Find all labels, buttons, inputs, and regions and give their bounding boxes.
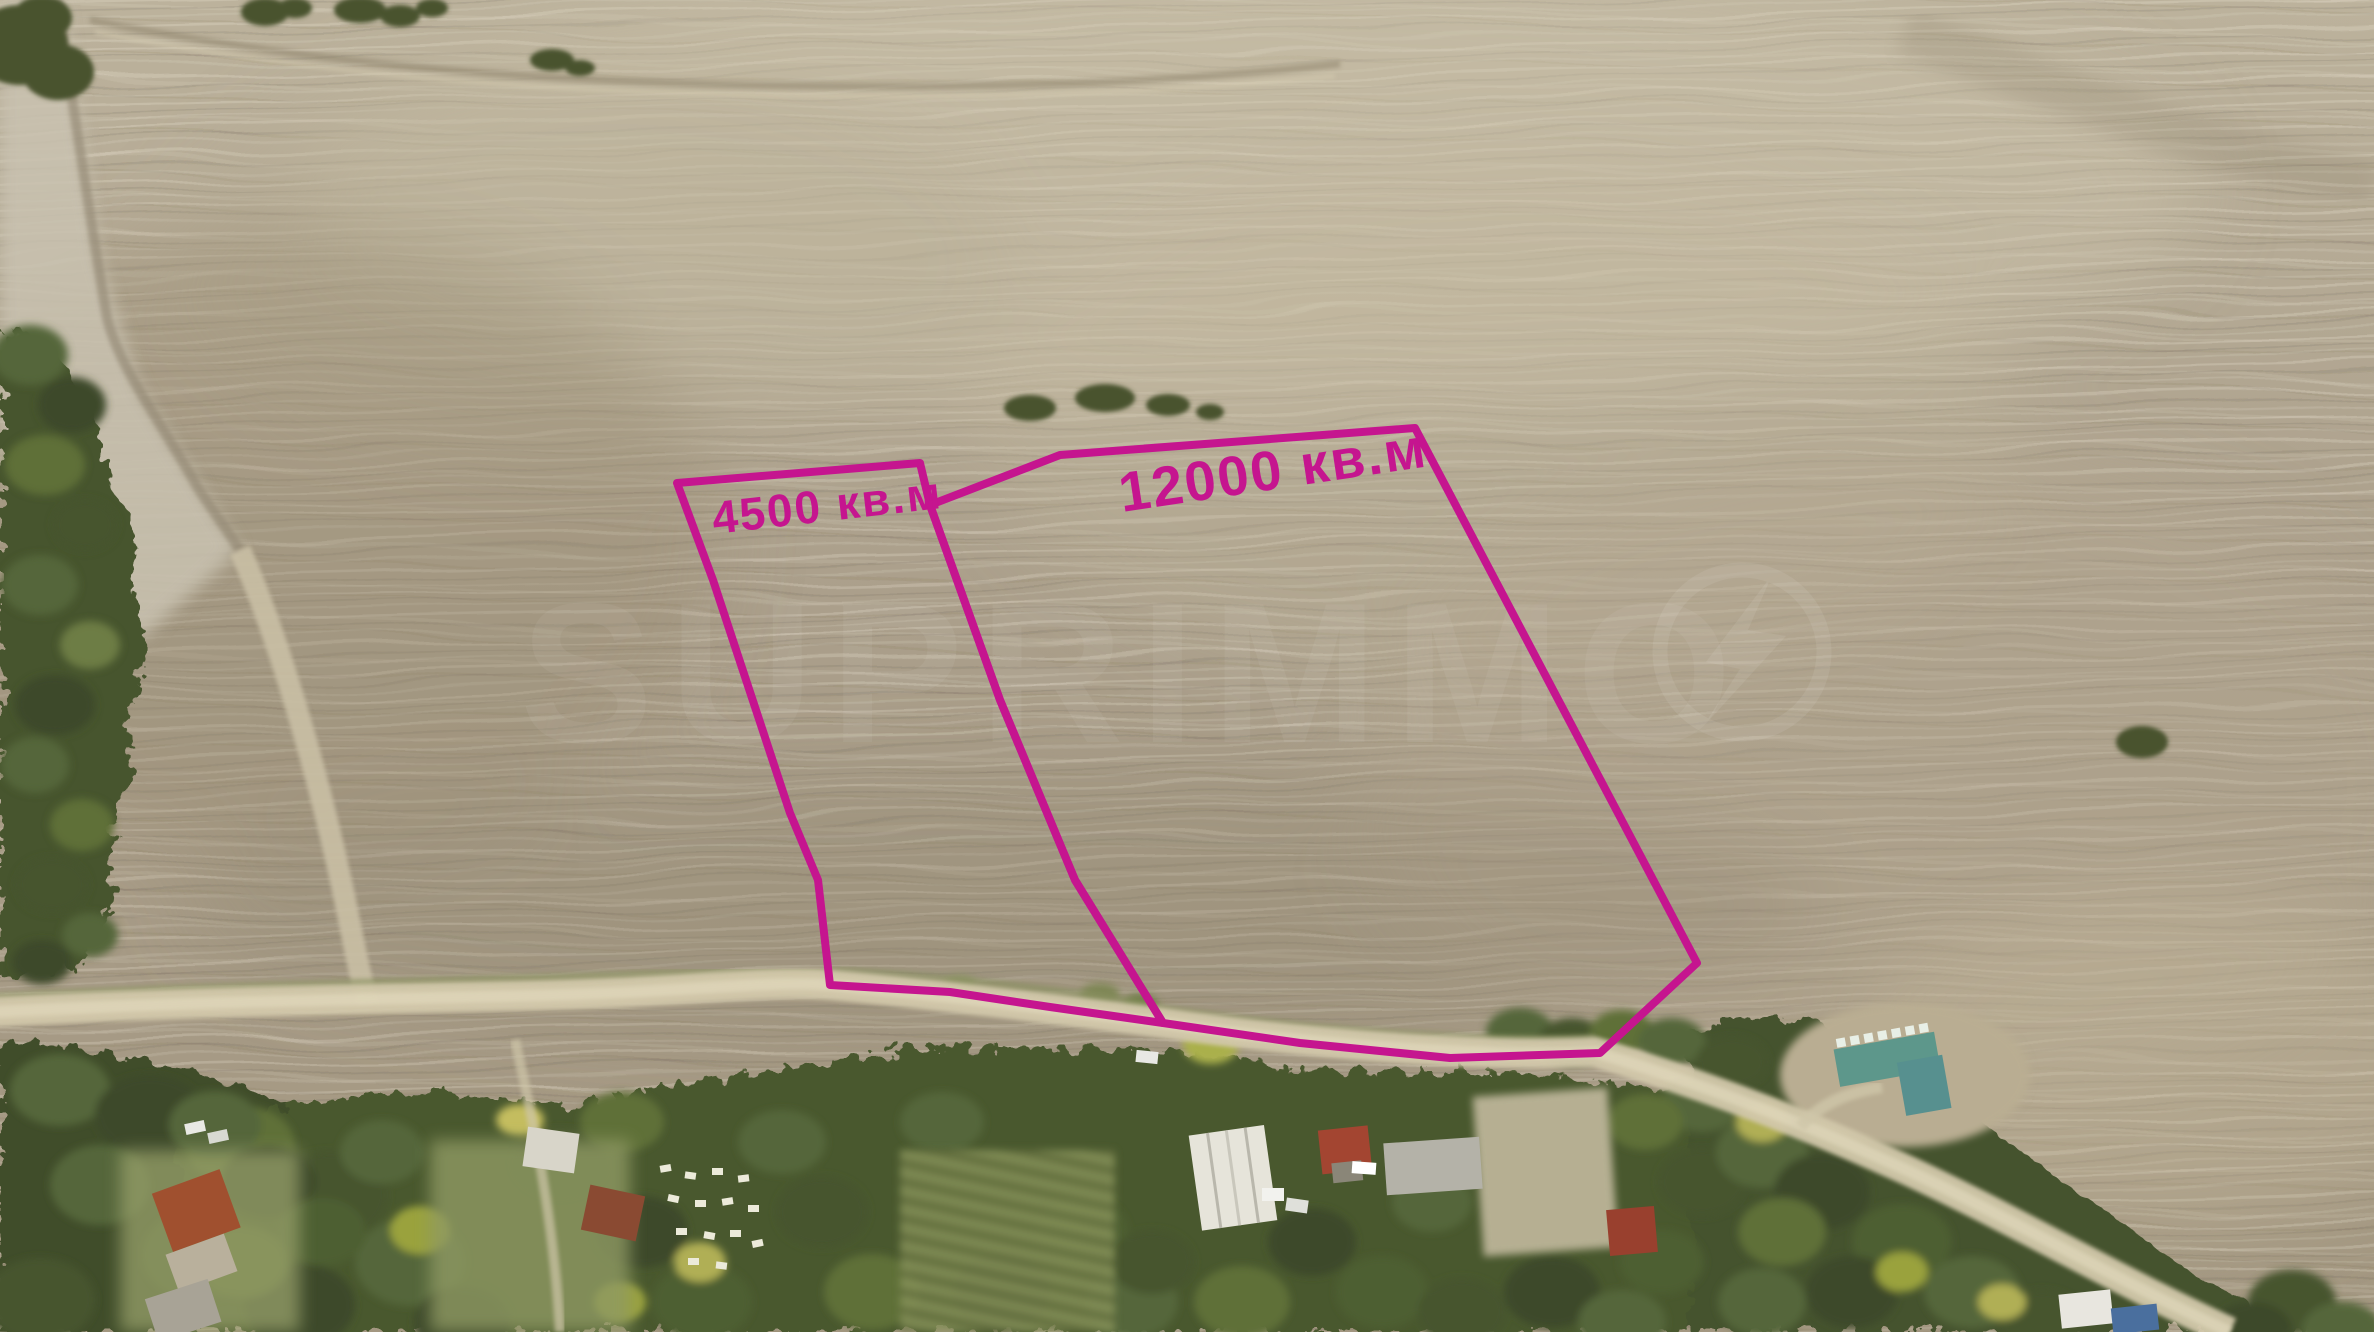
watermark-text: SUPRIMMO — [520, 562, 1748, 785]
shed-white — [522, 1127, 579, 1174]
house-red-right — [1606, 1206, 1658, 1256]
structure-blue — [2111, 1304, 2159, 1332]
structure-white — [2058, 1289, 2113, 1328]
aerial-photo-canvas: SUPRIMMO — [0, 0, 2374, 1332]
warehouse-white — [1189, 1125, 1278, 1231]
aerial-photo: SUPRIMMO — [0, 0, 2374, 1332]
building-long-grey — [1383, 1137, 1482, 1196]
